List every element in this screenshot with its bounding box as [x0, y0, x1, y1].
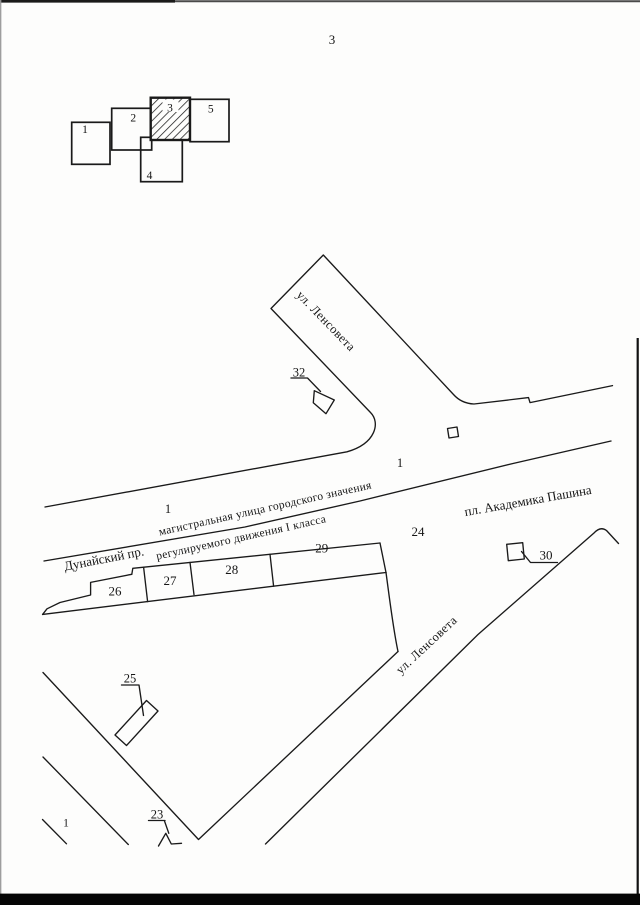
index-sheet-3-label: 3 — [167, 103, 173, 115]
svg-text:пл. Академика Пашина: пл. Академика Пашина — [463, 482, 593, 519]
index-sheet-5-label: 5 — [208, 103, 214, 115]
plan-drawing: 3 1 2 3 4 5 — [0, 0, 640, 905]
scanned-plan-sheet: 3 1 2 3 4 5 — [0, 0, 640, 905]
building-strip-bottom-edge — [43, 573, 386, 615]
plot-label-30: 30 — [540, 548, 553, 563]
block-corner-curve — [386, 573, 398, 652]
svg-text:ул. Ленсовета: ул. Ленсовета — [393, 613, 460, 677]
page-number: 3 — [329, 32, 336, 47]
plot-label-28: 28 — [225, 562, 238, 577]
street-label-lensoveta-lower: ул. Ленсовета — [393, 613, 460, 677]
zone-label-1-southwest: 1 — [63, 818, 69, 830]
divider-28-29 — [270, 554, 274, 586]
building-25 — [115, 701, 158, 746]
index-sheet-4-label: 4 — [147, 170, 153, 182]
svg-text:ул. Ленсовета: ул. Ленсовета — [294, 288, 359, 354]
divider-27-28 — [190, 562, 194, 594]
index-sheet-1 — [72, 122, 110, 164]
plot-label-32: 32 — [293, 366, 306, 380]
index-sheet-1-label: 1 — [82, 124, 88, 136]
plot-label-24: 24 — [412, 524, 426, 539]
street-label-lensoveta-upper: ул. Ленсовета — [294, 288, 359, 354]
plot-32-leader — [291, 378, 321, 392]
plot-label-29: 29 — [315, 541, 328, 556]
index-sheet-2-label: 2 — [130, 113, 136, 125]
road-north-boundary-and-lensoveta-upper-street — [45, 255, 613, 507]
plot-23-leader — [149, 821, 169, 834]
scan-edge-bottom — [0, 894, 640, 905]
plot-label-26: 26 — [109, 584, 123, 599]
building-29-east-edge — [380, 543, 386, 573]
zone-label-1-east: 1 — [397, 456, 403, 470]
junction-small-structure — [448, 427, 459, 438]
street-label-pashina: пл. Академика Пашина — [463, 482, 593, 519]
building-32 — [313, 391, 334, 414]
plot-label-27: 27 — [164, 573, 178, 588]
divider-26-27 — [144, 567, 148, 601]
plot-25-leader — [122, 685, 144, 716]
lensoveta-lower-east-edge — [266, 529, 619, 844]
plot-label-25: 25 — [124, 672, 137, 686]
zone-label-1-west: 1 — [165, 502, 171, 516]
building-23-clipped — [159, 833, 182, 846]
plot-label-23: 23 — [151, 808, 164, 822]
southwest-boundary-line-1 — [43, 757, 128, 845]
